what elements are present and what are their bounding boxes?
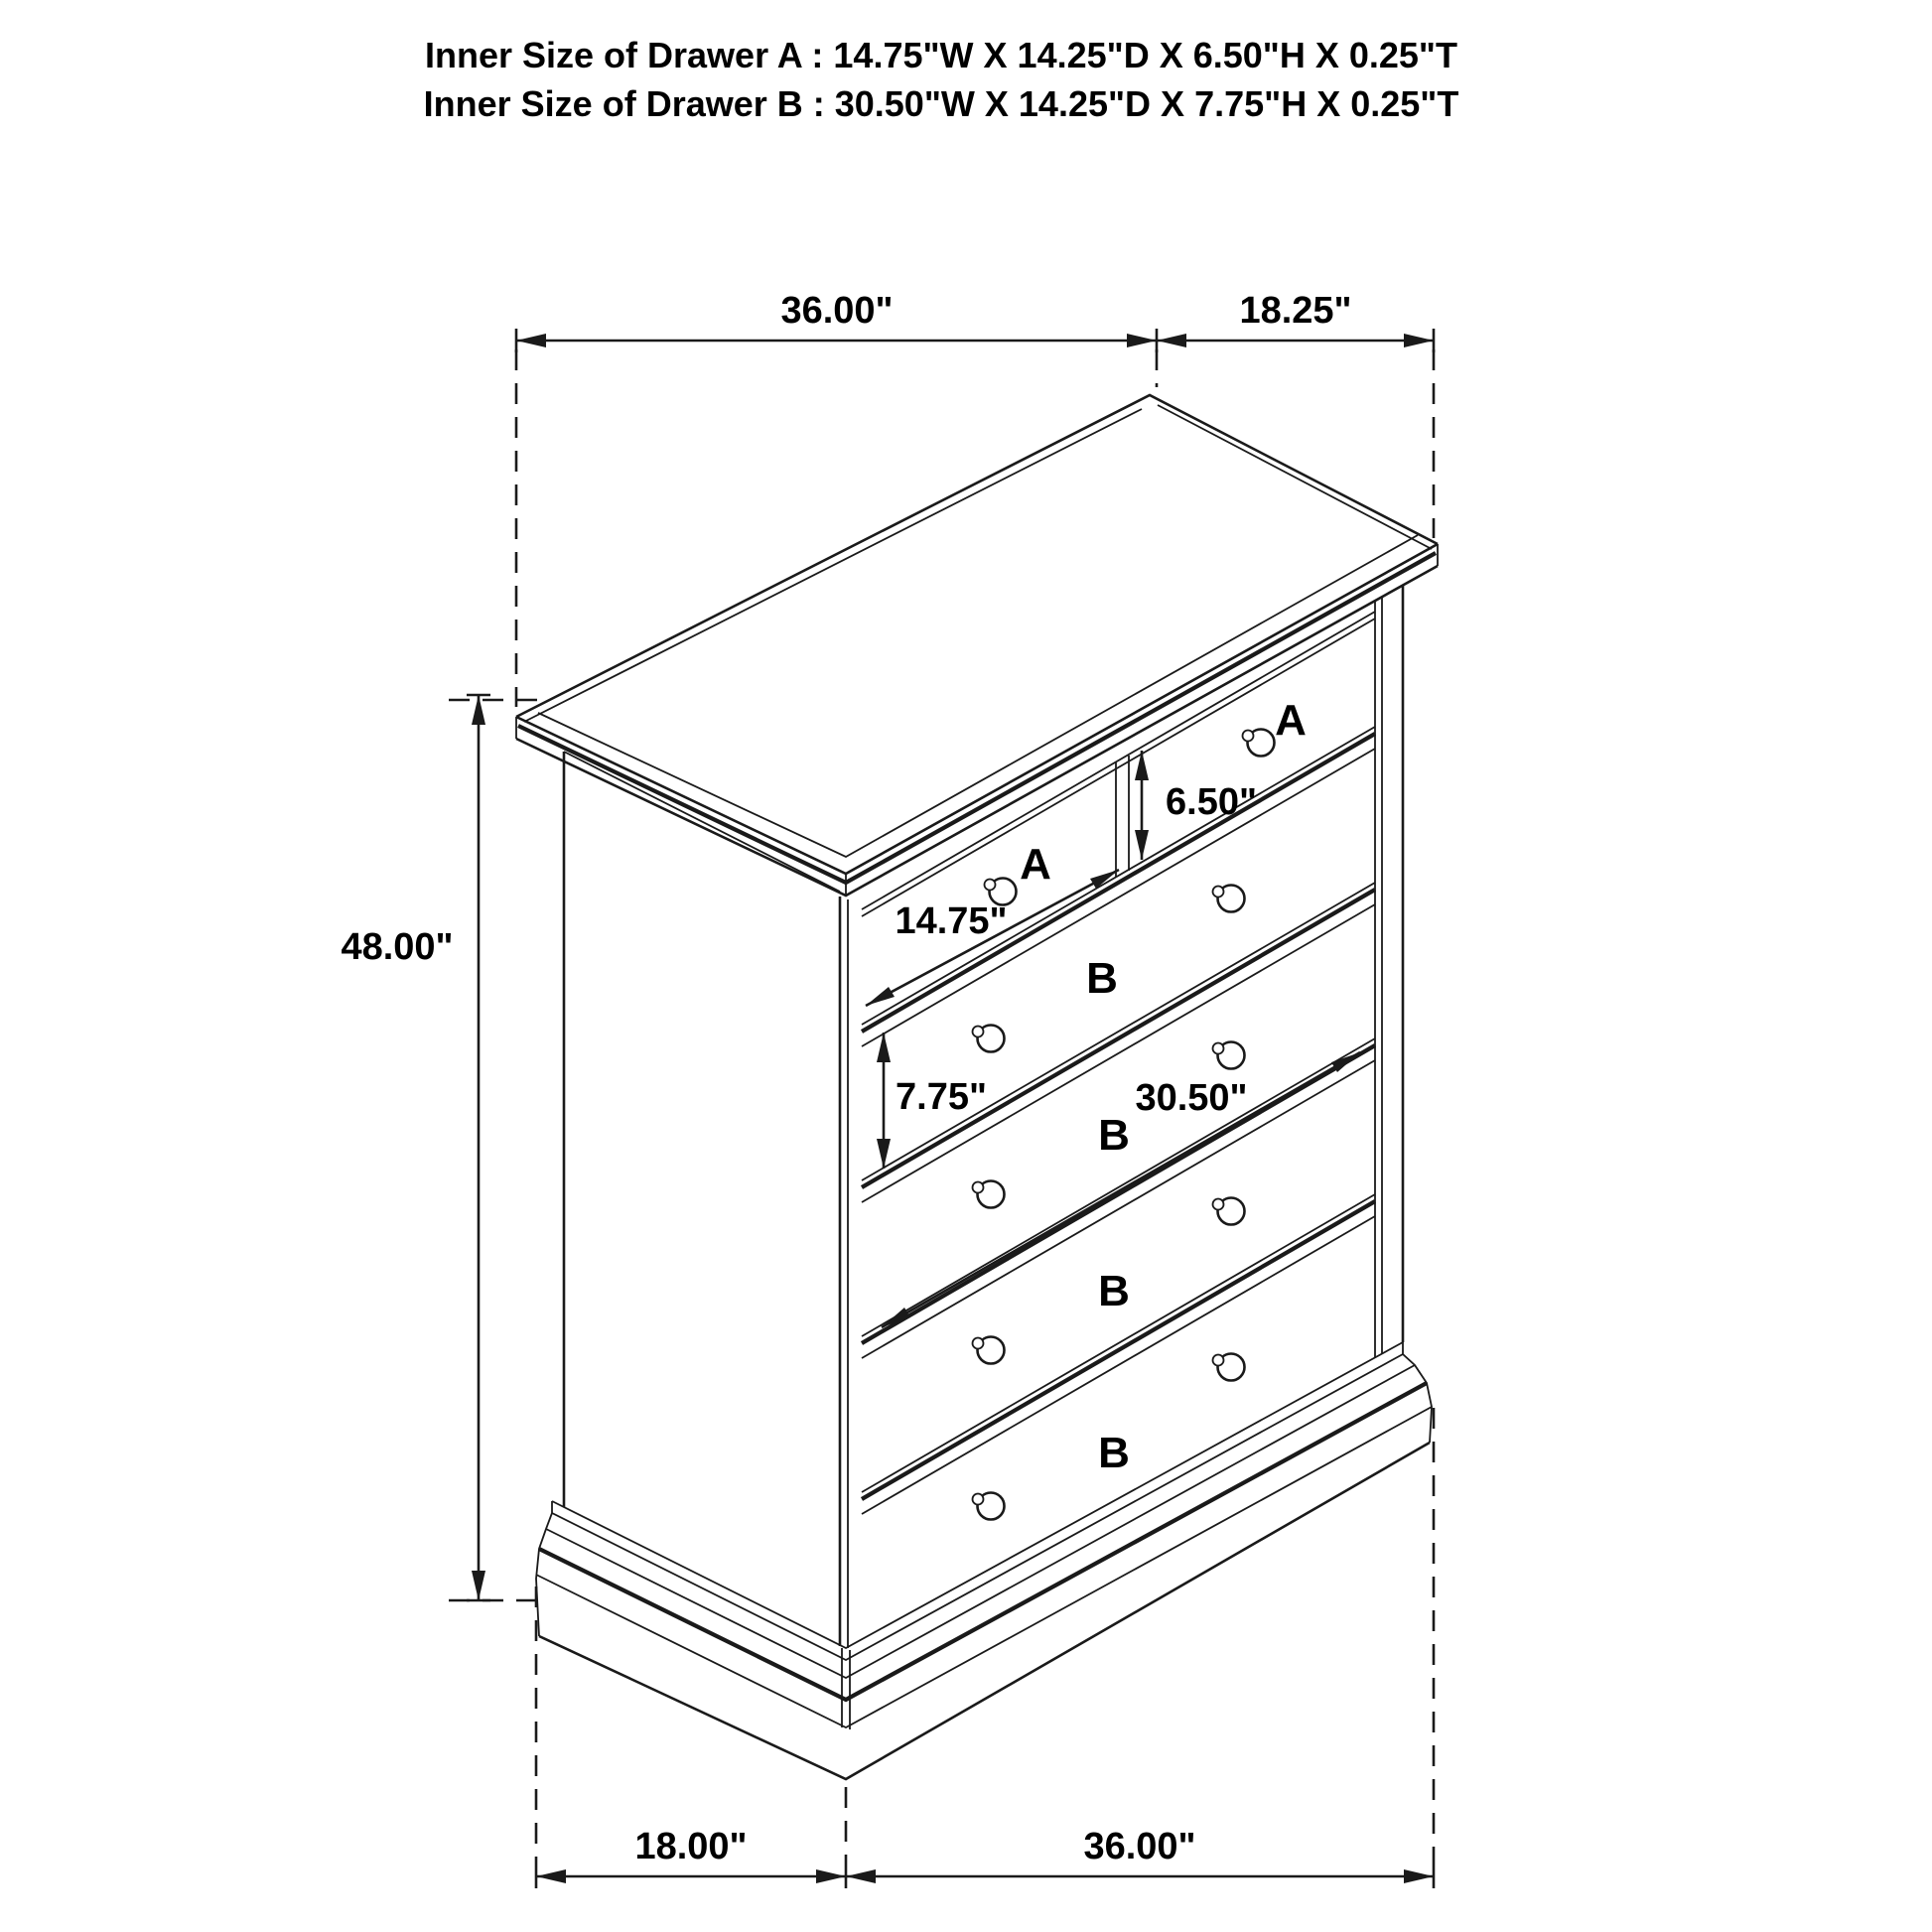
knob-icon [1213,886,1245,912]
drawer-label-a-right: A [1275,696,1307,745]
dim-label-top-depth: 18.25" [1239,290,1351,332]
arrowhead [1135,751,1149,780]
top-back-inner-left [524,409,1142,722]
dim-label-bottom-depth: 18.00" [634,1826,747,1867]
title-block: Inner Size of Drawer A : 14.75"W X 14.25… [424,35,1459,124]
arrowhead [1404,334,1434,347]
top-panel [516,395,1438,896]
drawer-label-a-left: A [1020,840,1051,889]
arrowhead [846,1869,876,1883]
knob-icon [1213,1354,1245,1381]
side-top-edge [564,752,840,892]
drawer-label-b-2: B [1098,1111,1130,1160]
base-left-cap [536,1501,552,1636]
drawer-a-divider [1116,756,1129,878]
knob-icon [973,1337,1005,1364]
knob-icon [1213,1042,1245,1069]
rail-line [862,619,1375,916]
dim-label-drawer-b-width: 30.50" [1135,1077,1247,1119]
top-outline-back [516,395,1438,717]
title-line-1: Inner Size of Drawer A : 14.75"W X 14.25… [425,35,1457,75]
base-molding [536,1342,1432,1779]
knob-icon [1213,1198,1245,1225]
drawing-canvas: Inner Size of Drawer A : 14.75"W X 14.25… [0,0,1932,1932]
drawer-label-b-3: B [1098,1267,1130,1315]
drawer-label-b-1: B [1086,954,1118,1003]
arrowhead [1404,1869,1434,1883]
arrowhead [536,1869,566,1883]
arrowhead [1157,334,1186,347]
rail-line [862,749,1375,1046]
drawer-rails [862,612,1375,1514]
diagram-page: Inner Size of Drawer A : 14.75"W X 14.25… [0,0,1932,1932]
dim-label-drawer-a-width: 14.75" [895,900,1007,942]
dim-label-bottom-width: 36.00" [1083,1826,1195,1867]
rail-line [862,727,1375,1025]
dim-label-height: 48.00" [341,926,453,968]
rail-line [862,612,1375,909]
arrowhead [472,1571,485,1600]
knob-icon [1243,730,1275,757]
knob-icon [973,1026,1005,1052]
title-line-2: Inner Size of Drawer B : 30.50"W X 14.25… [424,83,1459,124]
dim-label-drawer-b-height: 7.75" [896,1076,987,1118]
arrowhead [866,987,895,1006]
dim-label-drawer-a-height: 6.50" [1166,781,1257,823]
arrowhead [1135,830,1149,860]
base-line-3 [546,1365,1415,1678]
arrowhead [816,1869,846,1883]
knob-icon [973,1493,1005,1520]
dimension-labels: 36.00" 18.25" 48.00" 6.50" 14.75" 7.75" … [341,290,1351,1867]
top-back-inner-right [1158,405,1432,549]
arrowhead [516,334,546,347]
left-side-panel [564,752,848,1648]
rail-line [862,734,1375,1032]
arrowhead [1127,334,1157,347]
drawer-label-b-4: B [1098,1429,1130,1477]
front-frame [1375,586,1403,1357]
knob-icon [973,1181,1005,1208]
dim-label-top-width: 36.00" [780,290,893,332]
